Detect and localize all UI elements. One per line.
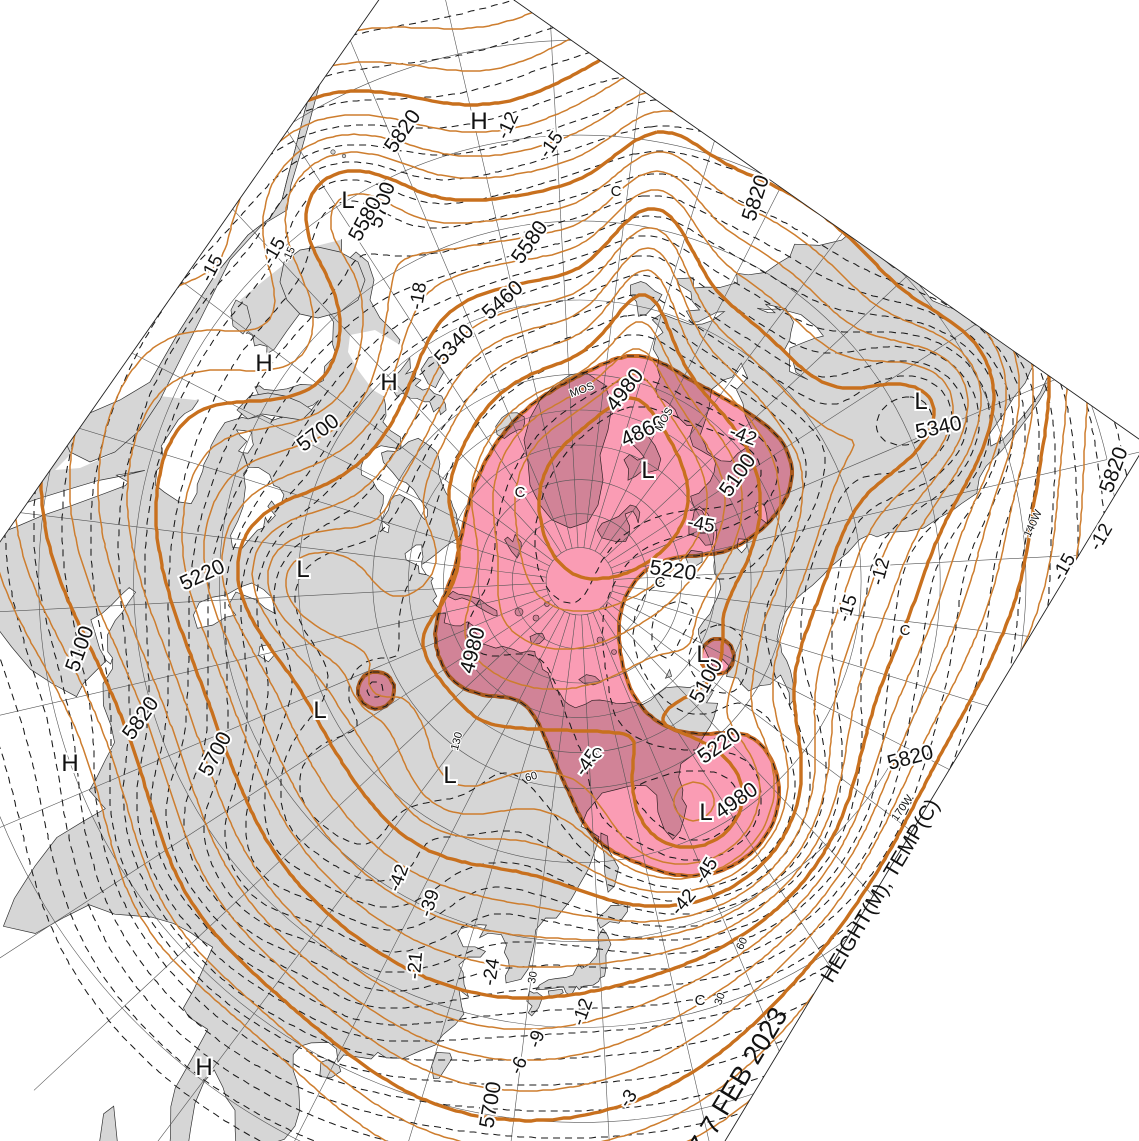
svg-text:H: H (61, 750, 78, 777)
svg-text:C: C (611, 183, 622, 200)
svg-text:C: C (592, 745, 603, 762)
svg-text:C: C (695, 992, 706, 1009)
svg-text:C: C (655, 574, 666, 591)
svg-text:L: L (341, 187, 354, 214)
svg-text:L: L (696, 641, 709, 668)
svg-text:L: L (699, 799, 712, 826)
svg-text:H: H (195, 1054, 212, 1081)
svg-text:L: L (313, 697, 326, 724)
svg-text:C: C (900, 622, 911, 639)
svg-text:H: H (380, 369, 397, 396)
svg-text:H: H (255, 350, 272, 377)
svg-text:L: L (641, 457, 654, 484)
svg-text:L: L (296, 556, 309, 583)
svg-text:H: H (470, 108, 487, 135)
svg-text:C: C (515, 484, 526, 501)
svg-text:30: 30 (526, 970, 540, 984)
svg-text:L: L (443, 762, 456, 789)
svg-text:-21: -21 (404, 951, 427, 980)
svg-text:L: L (914, 388, 927, 415)
